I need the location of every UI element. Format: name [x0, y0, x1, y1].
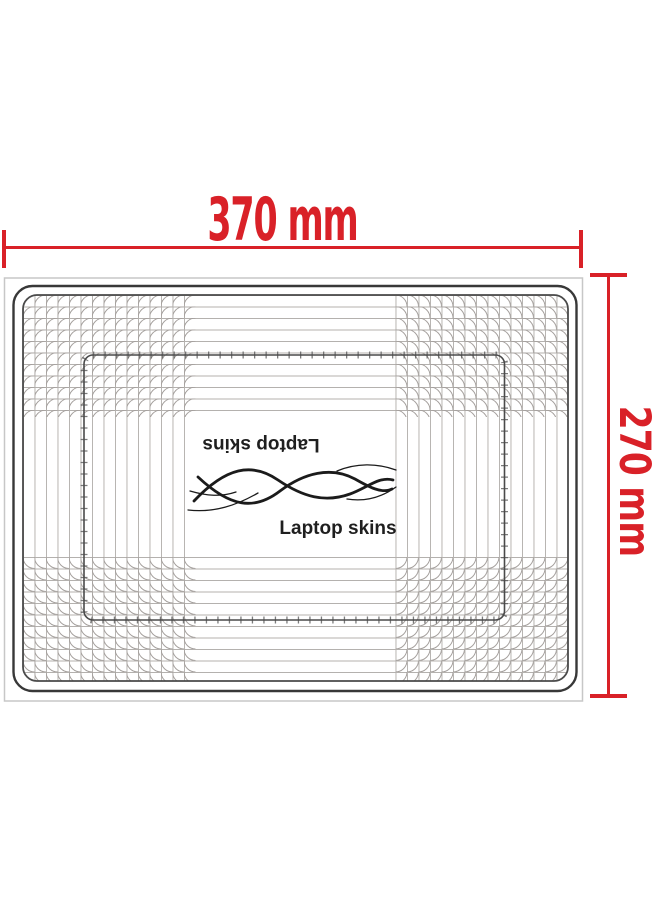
- height-dimension-label: 270 mm: [612, 401, 656, 561]
- height-dimension-tick-bottom: [590, 694, 627, 698]
- logo-text: Laptop skins: [248, 517, 428, 541]
- wave-swirl-icon: [188, 465, 396, 511]
- width-dimension-line: [3, 246, 583, 249]
- height-dimension-line: [607, 275, 610, 697]
- height-dimension-tick-top: [590, 273, 627, 277]
- laptop-skin-dimension-diagram: 370 mm 270 mm Laptop skins Laptop skins: [0, 0, 660, 900]
- width-dimension-tick-left: [2, 230, 6, 268]
- width-dimension-tick-right: [579, 230, 583, 268]
- width-dimension-label: 370 mm: [206, 190, 360, 250]
- logo-text-inverted: Laptop skins: [171, 432, 351, 456]
